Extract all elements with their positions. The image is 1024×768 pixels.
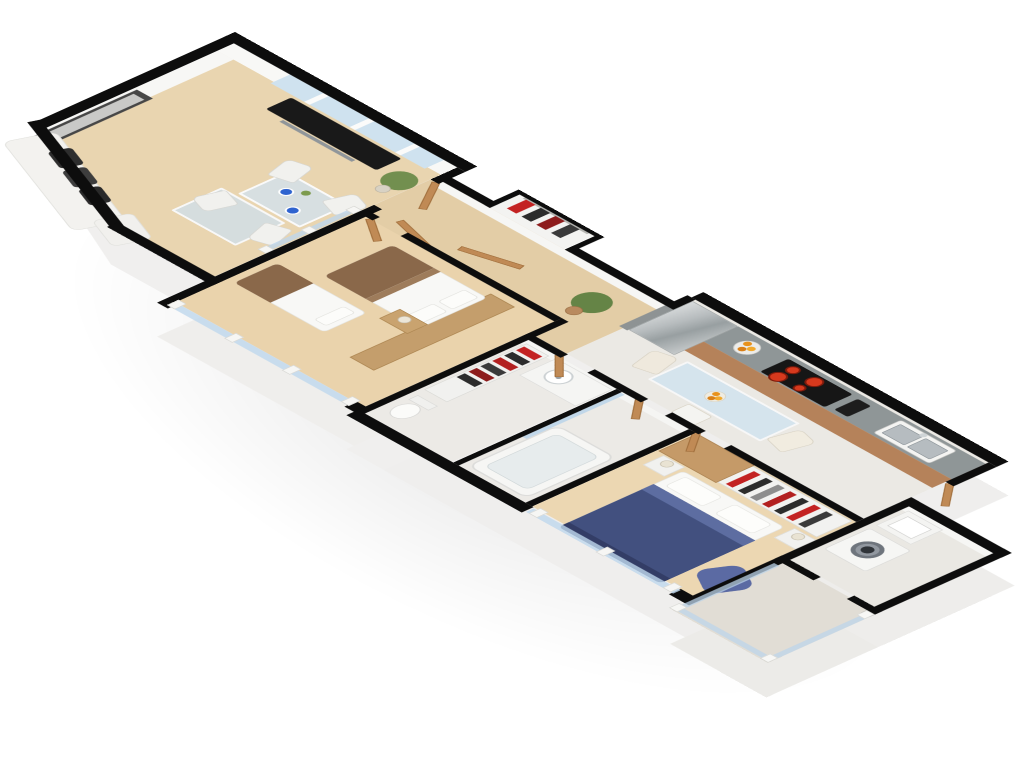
- door-leaf: [555, 355, 564, 377]
- floorplan-3d-render: [0, 0, 1024, 768]
